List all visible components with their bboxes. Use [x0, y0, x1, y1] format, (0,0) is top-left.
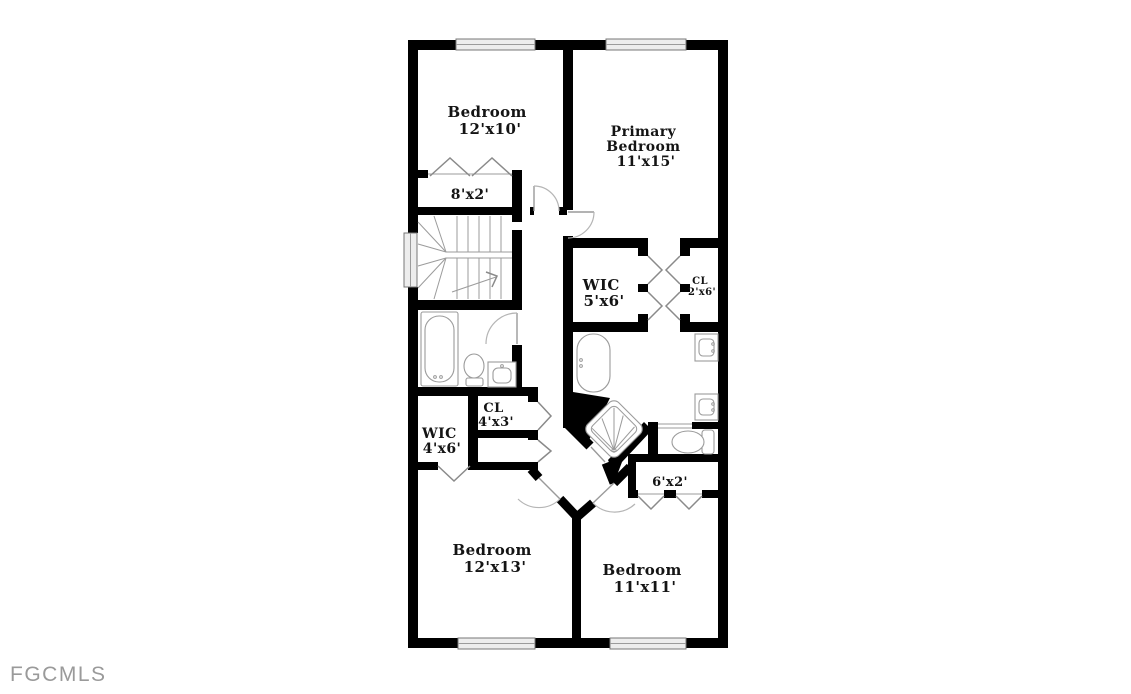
bifold-door-linen: [538, 440, 551, 462]
wall: [692, 422, 718, 429]
wall: [512, 230, 522, 310]
room-label-wic-primary: WIC 5'x6': [582, 276, 626, 310]
wall: [408, 170, 428, 178]
room-label-closet-6x2: 6'x2': [652, 475, 688, 490]
wall: [478, 430, 528, 438]
bifold-door-wic-5x6: [648, 256, 662, 320]
wall: [563, 50, 573, 210]
wall: [528, 396, 538, 402]
window: [610, 638, 686, 649]
door-primary-bedroom: [568, 212, 594, 238]
wall: [418, 207, 512, 215]
room-dims: 4'x6': [423, 441, 461, 457]
wall: [664, 490, 676, 498]
freestanding-tub-icon: [577, 334, 610, 392]
room-name: Bedroom: [603, 561, 682, 579]
wall: [680, 314, 690, 322]
bifold-door-cl-4x3: [538, 402, 551, 430]
sink-icon: [695, 334, 718, 361]
bifold-door-closet-8x2: [428, 158, 512, 176]
room-dims: 6'x2': [652, 475, 688, 490]
wall: [572, 513, 581, 638]
window: [606, 39, 686, 50]
window: [404, 233, 417, 287]
wall: [718, 40, 728, 648]
wall: [628, 490, 638, 498]
room-label-bedroom-bottom-left: Bedroom 12'x13': [453, 541, 538, 576]
toilet-icon: [672, 430, 714, 454]
pocket-door-water-closet: [658, 424, 692, 428]
wall: [563, 322, 648, 332]
wall: [702, 490, 718, 498]
wall: [528, 430, 538, 440]
toilet-icon: [464, 354, 484, 386]
room-label-bedroom-top-left: Bedroom 12'x10': [448, 103, 533, 138]
wall: [512, 170, 522, 222]
window: [456, 39, 535, 50]
room-dims: 11'x11': [614, 578, 677, 596]
wall: [408, 462, 438, 470]
wall: [628, 454, 718, 462]
room-dims: 4'x3': [478, 415, 514, 430]
room-name: WIC: [421, 426, 457, 442]
room-name: Primary: [611, 124, 677, 140]
bathtub-icon: [421, 312, 458, 386]
room-name: Bedroom: [606, 139, 680, 155]
wall: [680, 238, 718, 248]
room-dims: 12'x13': [464, 558, 527, 576]
door-bedroom-top-left: [534, 186, 559, 211]
wall: [535, 40, 606, 50]
wall: [680, 322, 718, 332]
floor-plan-page: Bedroom 12'x10' Primary Bedroom 11'x15' …: [0, 0, 1131, 694]
wall: [680, 248, 690, 256]
room-name: CL: [692, 276, 708, 287]
room-dims: 5'x6': [583, 292, 624, 310]
room-label-bedroom-bottom-right: Bedroom 11'x11': [603, 561, 688, 596]
room-label-closet-8x2: 8'x2': [451, 187, 489, 203]
sink-vanity-icon: [488, 362, 516, 387]
room-label-primary-bedroom: Primary Bedroom 11'x15': [606, 124, 685, 170]
window: [458, 638, 535, 649]
room-label-closet-primary: CL 2'x6': [688, 276, 716, 298]
wall: [648, 422, 658, 454]
wall: [470, 462, 538, 470]
room-label-wic-left: WIC 4'x6': [421, 426, 462, 457]
room-name: Bedroom: [453, 541, 532, 559]
bifold-door-cl-2x6: [666, 256, 680, 320]
room-name: CL: [483, 401, 503, 416]
room-dims: 2'x6': [688, 287, 716, 298]
room-dims: 8'x2': [451, 187, 489, 203]
watermark-logo: FGCMLS: [10, 663, 107, 686]
wall: [563, 238, 648, 248]
wall: [408, 40, 418, 233]
wall: [638, 314, 648, 322]
wall: [559, 207, 567, 215]
room-label-closet-hall: CL 4'x3': [478, 401, 514, 430]
wall: [563, 238, 573, 428]
wall: [408, 300, 522, 310]
staircase: [418, 216, 512, 299]
wall: [638, 248, 648, 256]
wall: [468, 396, 478, 470]
wall: [638, 284, 648, 292]
wall: [535, 638, 610, 648]
sink-icon: [695, 394, 718, 420]
door-bedroom-bottom-left: [518, 478, 560, 508]
room-dims: 12'x10': [459, 120, 522, 138]
bifold-door-wic-4x6: [438, 466, 470, 481]
room-name: Bedroom: [448, 103, 527, 121]
floor-plan-svg: Bedroom 12'x10' Primary Bedroom 11'x15' …: [0, 0, 1131, 694]
room-dims: 11'x15': [617, 154, 676, 170]
wall: [408, 387, 538, 396]
door-hall-bathroom: [486, 313, 517, 344]
wall: [531, 469, 539, 478]
